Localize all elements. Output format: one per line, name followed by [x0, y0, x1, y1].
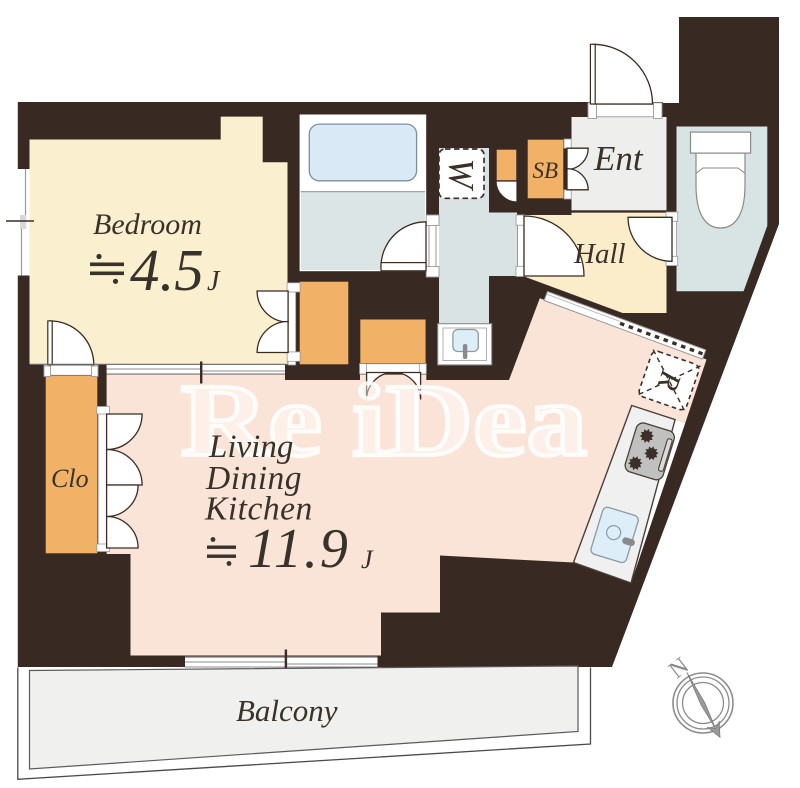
svg-text:4.5: 4.5 — [130, 237, 204, 303]
svg-text:W: W — [442, 159, 482, 192]
svg-text:J: J — [361, 545, 374, 574]
svg-text:Ent: Ent — [593, 139, 644, 178]
svg-text:J: J — [207, 266, 221, 297]
svg-text:Balcony: Balcony — [236, 693, 338, 728]
svg-text:SB: SB — [533, 158, 559, 183]
svg-text:Clo: Clo — [51, 464, 89, 493]
svg-text:Hall: Hall — [573, 238, 626, 270]
svg-text:11.9: 11.9 — [248, 518, 350, 580]
